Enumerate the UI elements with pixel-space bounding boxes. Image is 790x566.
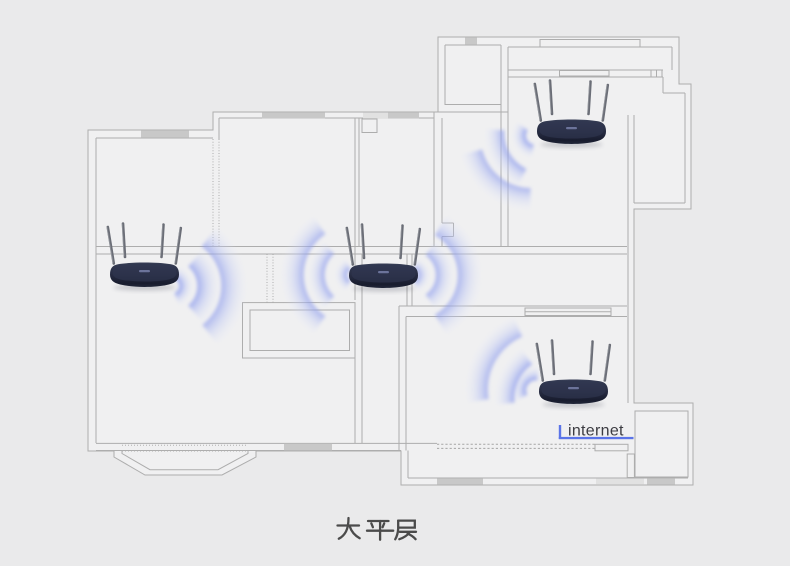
svg-text:internet: internet bbox=[568, 423, 624, 440]
